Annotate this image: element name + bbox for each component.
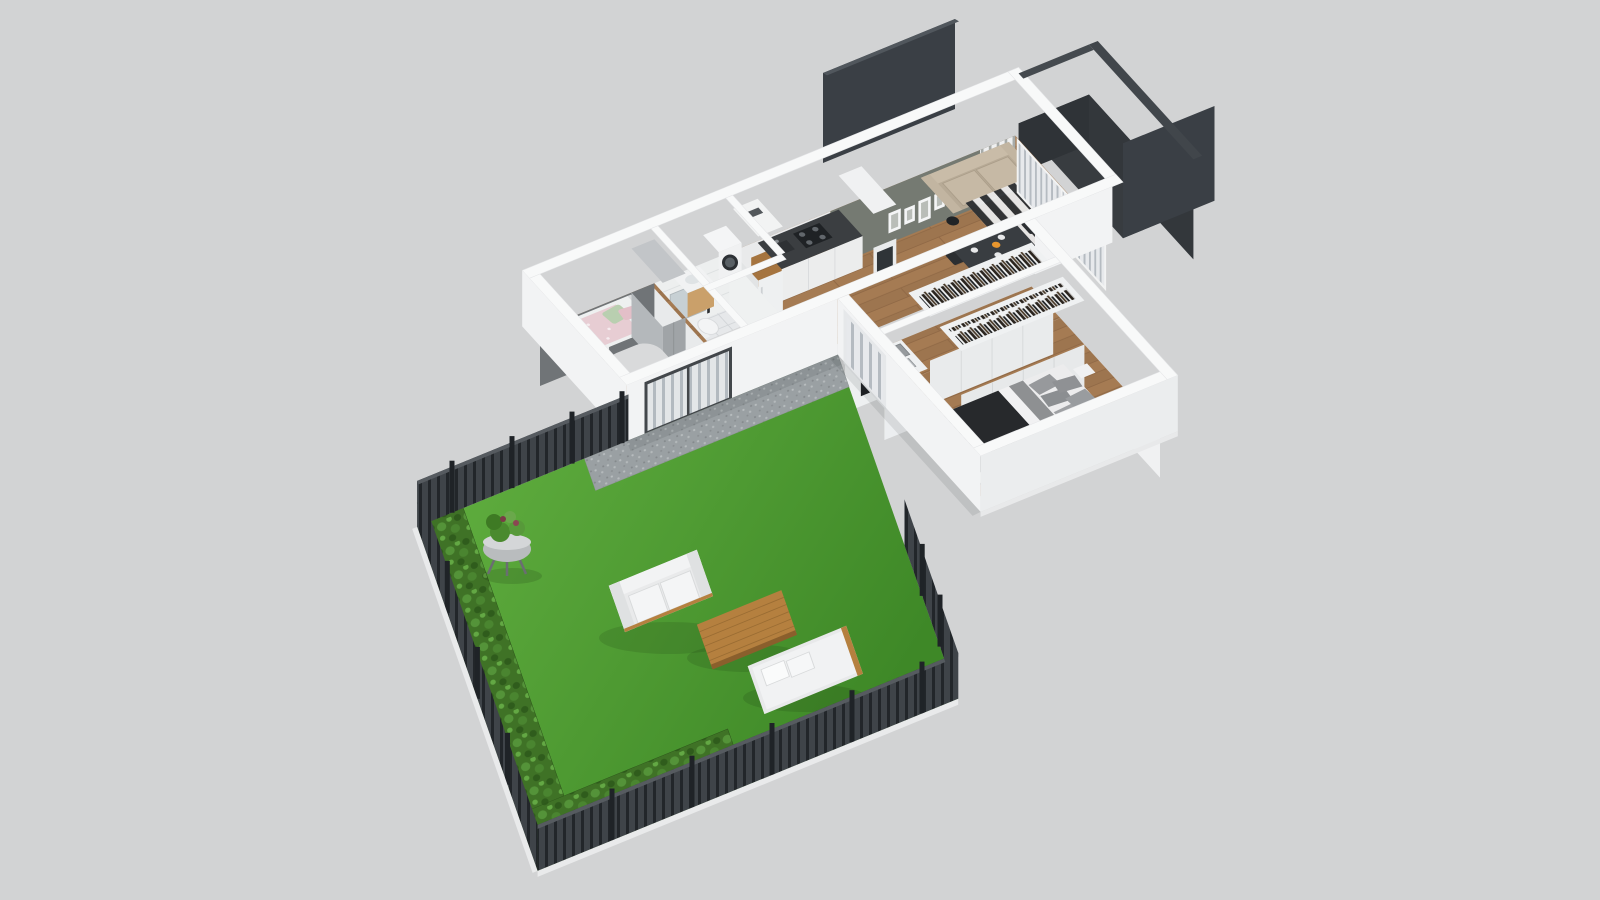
floor-plan-stage: [0, 0, 1600, 900]
floor-plan-scene: [0, 0, 1600, 900]
